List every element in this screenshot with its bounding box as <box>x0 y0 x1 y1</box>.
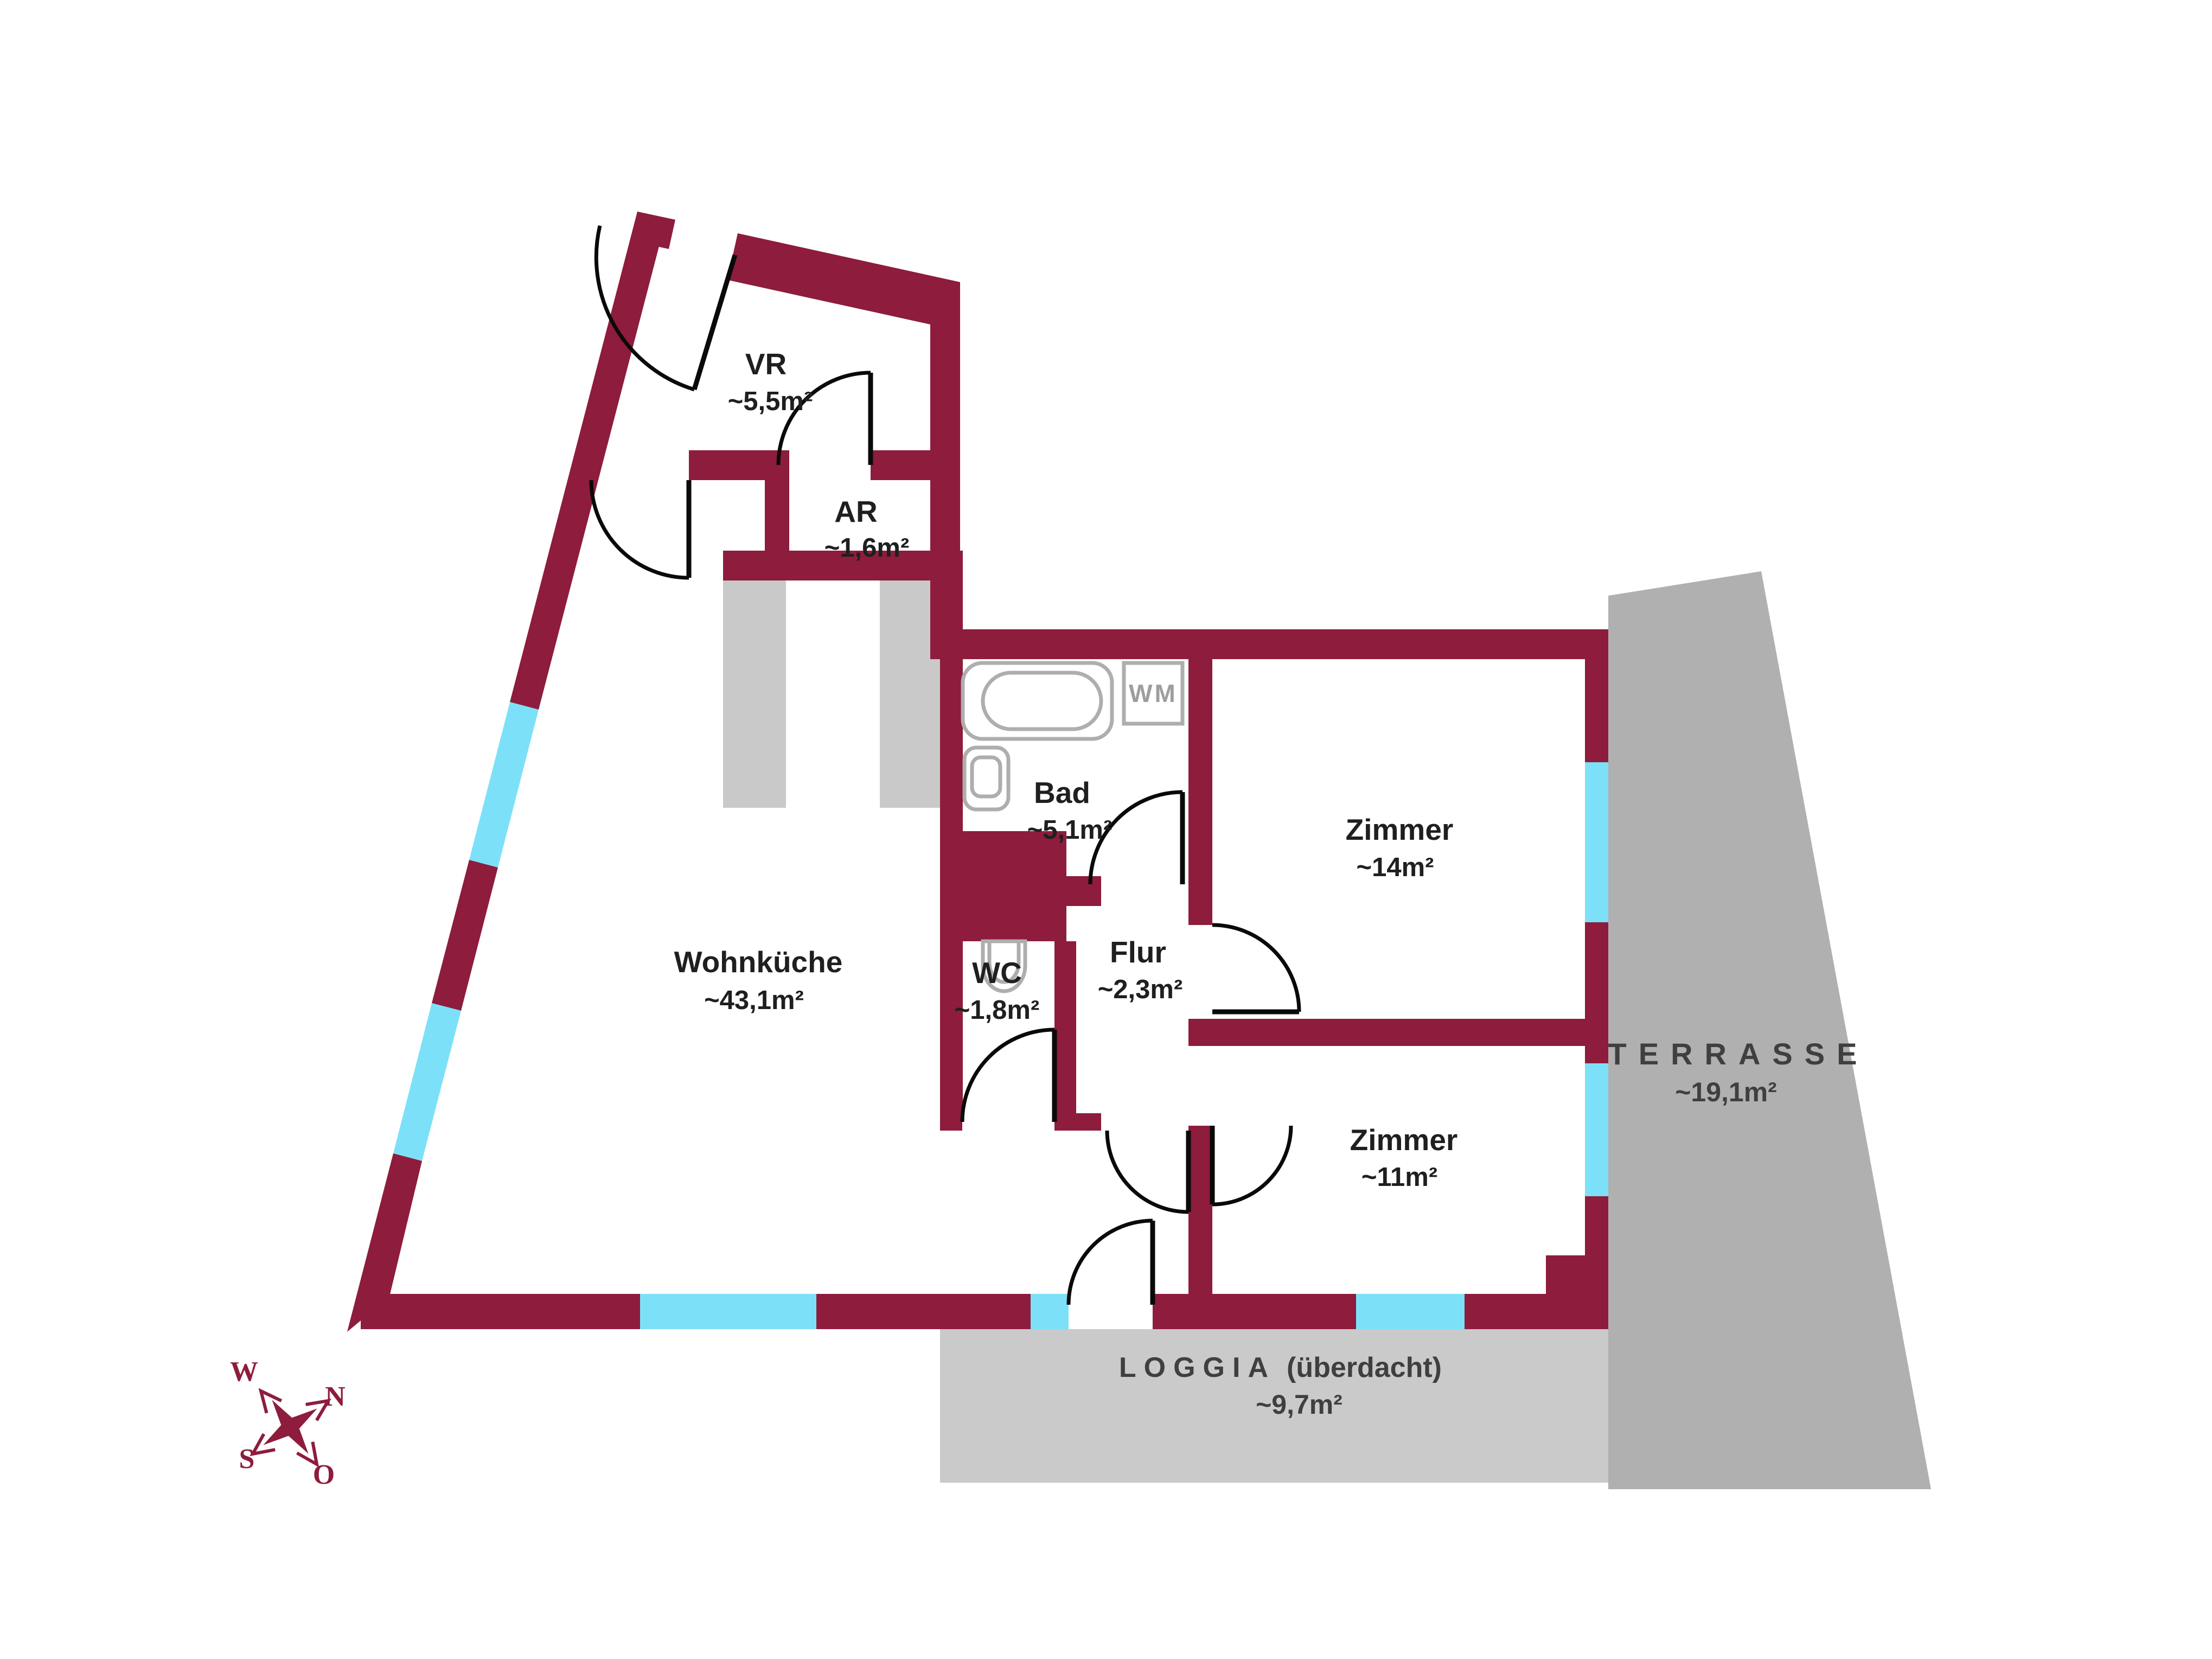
zimmer14-label: Zimmer <box>1346 813 1454 846</box>
wc-door-arc <box>962 1030 1054 1122</box>
window-left-1 <box>469 702 539 867</box>
compass-letter-east: O <box>313 1459 335 1490</box>
flur-area: ~2,3m² <box>1098 975 1183 1004</box>
shaft-left <box>723 580 786 808</box>
wall-bad-left <box>940 551 963 831</box>
window-zimmer11-right <box>1585 1063 1608 1196</box>
wall-bottom-4 <box>1465 1294 1608 1329</box>
loggia-area: ~9,7m² <box>1256 1389 1342 1420</box>
ar-label: AR <box>834 495 877 528</box>
wall-ar-left <box>765 480 789 551</box>
terrasse-label: TERRASSE <box>1608 1037 1869 1071</box>
loggia-label: LOGGIA <box>1119 1352 1276 1383</box>
window-bottom-wohnkueche <box>640 1294 816 1329</box>
wall-left-slant-1 <box>510 212 666 710</box>
bad-area: ~5,1m² <box>1027 815 1113 845</box>
flur-label: Flur <box>1110 935 1166 969</box>
compass-rose: W N S O <box>230 1356 346 1490</box>
wall-right-3 <box>1585 1196 1608 1294</box>
loggia-label-suffix: (überdacht) <box>1287 1352 1442 1383</box>
window-zimmer14 <box>1585 762 1608 922</box>
bathtub-inner <box>983 673 1101 729</box>
ar-area: ~1,6m² <box>824 533 910 563</box>
wall-top <box>930 629 1608 659</box>
zimmer11-label: Zimmer <box>1350 1123 1458 1157</box>
wall-bottom-1 <box>361 1294 640 1329</box>
wall-vr-bottom-left <box>689 450 789 480</box>
wall-bad-bottom <box>1066 876 1101 906</box>
wall-left-slant-2 <box>432 860 498 1011</box>
compass-letter-west: W <box>230 1356 258 1387</box>
wall-wc-left <box>940 941 963 1113</box>
wall-right-1 <box>1585 659 1608 762</box>
vr-label: VR <box>745 347 787 381</box>
wall-bottom-2 <box>816 1294 1031 1329</box>
wohnkueche-label: Wohnküche <box>674 945 843 979</box>
zimmer11-door-arc <box>1212 1126 1291 1204</box>
wall-wc-bottom-sliver <box>940 1113 962 1131</box>
wc-area: ~1,8m² <box>955 996 1040 1025</box>
wall-step-pillar <box>1546 1255 1585 1294</box>
wall-right-2 <box>1585 922 1608 1063</box>
zimmer14-door-arc <box>1212 925 1299 1012</box>
loggia-door-arc <box>1069 1221 1153 1305</box>
vr-wohnkueche-door-arc <box>591 480 689 578</box>
wall-flur-right-1 <box>1188 659 1212 925</box>
flur-strip-door-arc <box>1107 1131 1188 1212</box>
compass-star-icon <box>263 1400 317 1453</box>
compass-letter-north: N <box>325 1381 346 1412</box>
compass-letter-south: S <box>239 1444 255 1475</box>
wc-label: WC <box>972 956 1022 990</box>
zimmer14-area: ~14m² <box>1356 853 1434 882</box>
wall-block-bad-wc <box>940 831 1066 941</box>
zimmer11-area: ~11m² <box>1361 1163 1437 1192</box>
vr-area: ~5,5m² <box>728 387 813 416</box>
entrance-door-leaf <box>694 255 735 390</box>
wall-vr-bottom-right <box>871 450 930 480</box>
sink-inner <box>972 757 1000 796</box>
terrace-area <box>1608 571 1931 1489</box>
bad-label: Bad <box>1034 776 1090 809</box>
floor-plan-svg: WM VR ~5,5m² AR ~1,6m² Bad ~5,1m² WC ~1,… <box>0 0 2212 1659</box>
washing-machine-label: WM <box>1129 679 1178 707</box>
window-left-2 <box>393 1003 461 1161</box>
wall-wc-bottom-right <box>1054 1113 1101 1131</box>
wall-wc-right <box>1054 941 1076 1113</box>
wall-bottom-3 <box>1153 1294 1356 1329</box>
wohnkueche-area: ~43,1m² <box>704 986 804 1015</box>
shafts <box>723 580 940 808</box>
wall-flur-right-3 <box>1188 1126 1212 1294</box>
window-bottom-small <box>1031 1294 1069 1329</box>
wall-zimmer-divider <box>1199 1019 1585 1046</box>
terrasse-area: ~19,1m² <box>1675 1077 1777 1107</box>
window-bottom-zimmer11 <box>1356 1294 1465 1329</box>
